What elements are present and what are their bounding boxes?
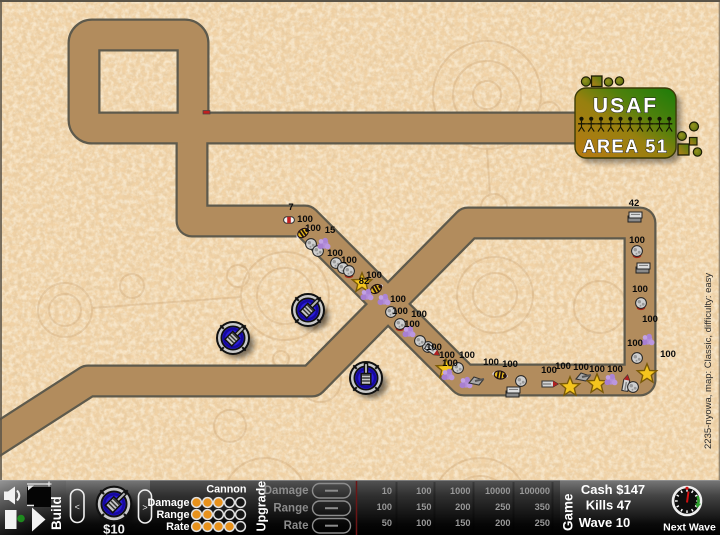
svg-text:Cash $147: Cash $147 [581, 482, 645, 497]
svg-text:100: 100 [607, 364, 623, 375]
svg-text:USAF: USAF [593, 95, 658, 118]
svg-text:100: 100 [555, 361, 571, 372]
svg-text:100: 100 [390, 294, 406, 305]
svg-text:100: 100 [416, 486, 431, 496]
svg-text:150: 150 [455, 518, 470, 528]
svg-text:Damage: Damage [147, 497, 189, 509]
svg-text:100: 100 [483, 357, 499, 368]
svg-text:200: 200 [455, 502, 470, 512]
svg-text:10: 10 [382, 486, 392, 496]
svg-text:100: 100 [573, 362, 589, 373]
svg-text:100: 100 [627, 338, 643, 349]
svg-text:2235-nyowa, map: Classic, diff: 2235-nyowa, map: Classic, difficulty: ea… [703, 273, 714, 449]
svg-text:250: 250 [495, 502, 510, 512]
svg-text:100: 100 [589, 364, 605, 375]
svg-text:Range: Range [157, 509, 190, 521]
svg-text:100: 100 [305, 223, 321, 234]
svg-text:42: 42 [629, 198, 640, 209]
svg-text:AREA 51: AREA 51 [583, 137, 669, 157]
svg-text:100: 100 [392, 306, 408, 317]
svg-text:100: 100 [404, 319, 420, 330]
svg-text:15: 15 [325, 225, 336, 236]
svg-text:250: 250 [535, 518, 550, 528]
svg-text:100: 100 [642, 314, 658, 325]
svg-text:100: 100 [341, 255, 357, 266]
svg-text:150: 150 [416, 502, 431, 512]
svg-text:Cannon: Cannon [206, 484, 246, 496]
svg-text:100: 100 [459, 350, 475, 361]
svg-text:100: 100 [502, 359, 518, 370]
svg-text:Next Wave: Next Wave [663, 522, 716, 534]
svg-text:100000: 100000 [519, 486, 550, 496]
svg-text:7: 7 [288, 202, 293, 213]
svg-text:100: 100 [416, 518, 431, 528]
svg-text:Rate: Rate [284, 520, 309, 532]
svg-text:$10: $10 [103, 522, 125, 535]
svg-text:350: 350 [535, 502, 550, 512]
svg-text:Game: Game [561, 493, 576, 531]
svg-text:Kills 47: Kills 47 [586, 498, 632, 513]
svg-text:Wave 10: Wave 10 [579, 515, 631, 530]
svg-text:Build: Build [49, 496, 64, 530]
svg-text:50: 50 [382, 518, 392, 528]
svg-text:100: 100 [632, 284, 648, 295]
svg-text:100: 100 [442, 358, 458, 369]
svg-text:Damage: Damage [264, 485, 309, 497]
svg-text:100: 100 [629, 235, 645, 246]
svg-text:100: 100 [377, 502, 392, 512]
svg-text:100: 100 [660, 349, 676, 360]
svg-text:1000: 1000 [450, 486, 470, 496]
svg-text:10000: 10000 [485, 486, 511, 496]
svg-text:<: < [75, 502, 80, 512]
svg-text:Range: Range [273, 503, 308, 515]
svg-text:82: 82 [359, 276, 370, 287]
svg-text:200: 200 [495, 518, 510, 528]
svg-text:Rate: Rate [166, 521, 189, 533]
